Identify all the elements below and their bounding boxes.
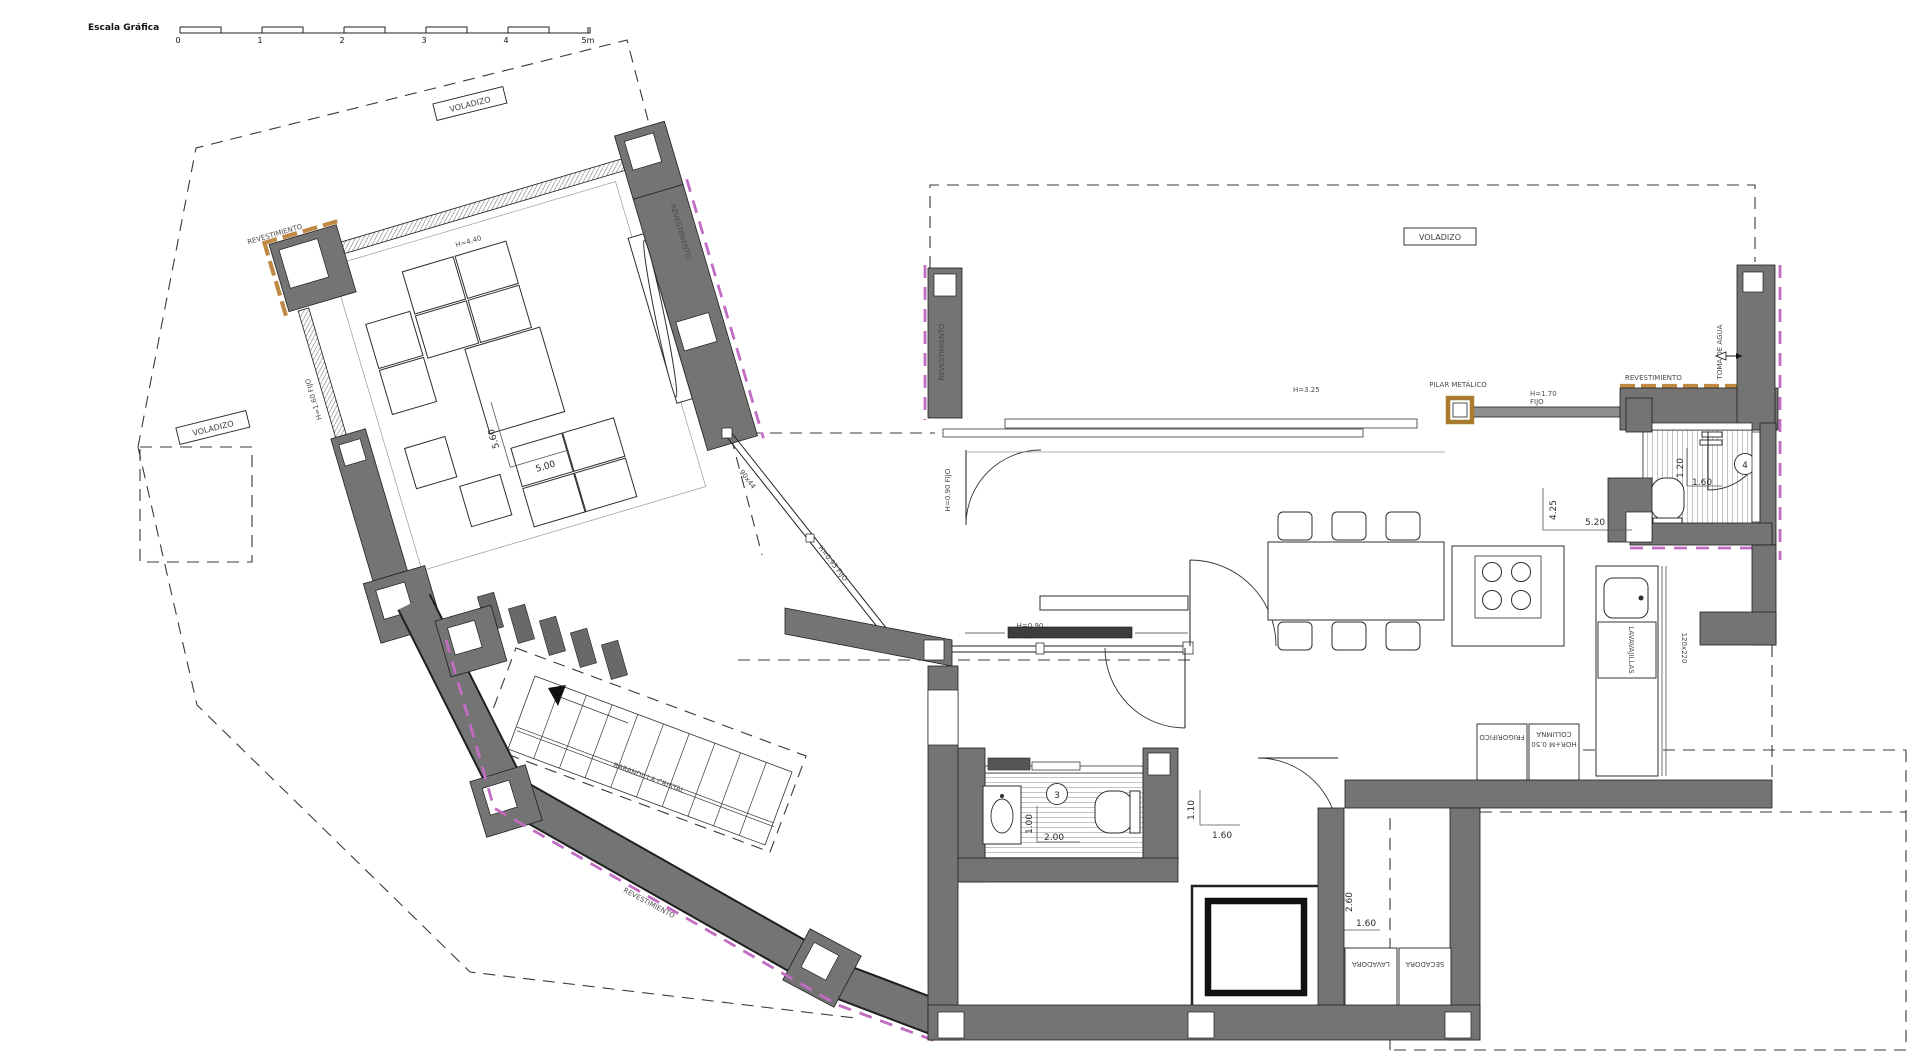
window-post (722, 428, 732, 438)
bathroom-4-dim-b: 1.60 (1692, 478, 1712, 488)
sliding-door-panel (1008, 627, 1132, 638)
voladizo-label-left: VOLADIZO (176, 411, 250, 445)
wing-west-door-gap (928, 690, 958, 745)
room-number-4: 4 (1742, 461, 1748, 471)
scale-bar-ticks: 0 1 2 3 4 5m (175, 36, 594, 45)
dining-set (1268, 512, 1444, 650)
counter-dim-label: 120x220 (1680, 633, 1688, 664)
scale-tick-0: 0 (175, 36, 180, 45)
bathroom-3-dim-a: 1.00 (1025, 814, 1035, 834)
kitchen-faucet (1639, 596, 1644, 601)
bathroom-3-south-wall (952, 858, 1178, 882)
bathroom-3-shelf (988, 758, 1030, 770)
kitchen-wing: REVESTIMIENTO H=3.25 PILAR METÁLICO H=1.… (785, 265, 1780, 1040)
coffee-table (465, 327, 565, 434)
toilet-bath3 (1095, 791, 1133, 833)
dining-chair (1278, 622, 1312, 650)
kitchen-north-window-b (1005, 419, 1417, 428)
voladizo-label-text: VOLADIZO (1419, 233, 1461, 242)
revestimiento-label-topright: REVESTIMIENTO (1625, 374, 1682, 382)
washer-box (1345, 948, 1397, 1006)
living-south-walls: REVESTIMIENTO (414, 602, 945, 1042)
bathroom-3-dim-b: 2.00 (1044, 833, 1064, 843)
kitchen-south-wall (1345, 780, 1772, 808)
bathroom-4-north-wall (1643, 423, 1752, 430)
kitchen-dim-b: 5.20 (1585, 518, 1605, 528)
kitchen-dim-a: 4.25 (1549, 500, 1559, 520)
hall-dim-lines (1200, 790, 1240, 825)
dining-chair (1386, 622, 1420, 650)
shelf (1700, 440, 1722, 445)
laundry-west-wall (1318, 808, 1344, 1008)
window-post (806, 534, 814, 542)
bathroom-4-dim-a: 1.20 (1676, 458, 1686, 478)
kitchen-mid-wall-core (1626, 512, 1652, 542)
kitchen-island (1452, 546, 1564, 646)
kitchen-window-label-b2: FIJO (1530, 398, 1544, 406)
counter-edge (1662, 566, 1666, 776)
sofa-group-lower (453, 418, 636, 544)
scale-tick-3: 3 (421, 36, 426, 45)
dishwasher-box (1598, 622, 1656, 678)
fridge-box (1477, 724, 1527, 780)
bathroom-3: 3 1.00 2.00 (952, 748, 1178, 882)
dining-chair (1332, 622, 1366, 650)
kitchen-window-label-b1: H=1.70 (1530, 390, 1557, 398)
elevator-shaft-inner (1208, 901, 1304, 993)
terrace-door-label: H=0.90 FIJO (944, 468, 952, 511)
kitchen-window-label-a: H=3.25 (1293, 386, 1320, 394)
dryer-box (1399, 948, 1451, 1006)
bathroom-4-west-wall (1626, 398, 1652, 432)
voladizo-outline-right (930, 185, 1755, 268)
dining-chair (1332, 512, 1366, 540)
living-wing: H=4.40 REVESTIMIENTO REVESTIMIENTO H=1.6… (247, 114, 789, 647)
hall-bench (1040, 596, 1188, 610)
dining-chair (1278, 512, 1312, 540)
scale-tick-1: 1 (257, 36, 262, 45)
east-wall-corner (1700, 612, 1776, 645)
hall-dim-b: 1.60 (1212, 831, 1232, 841)
dining-table (1268, 542, 1444, 620)
terrace-south-wall-core (924, 640, 944, 660)
bathroom-4-window (1752, 432, 1760, 522)
pilar-metalico-label: PILAR METÁLICO (1429, 380, 1487, 389)
lavadora-label: LAVADORA (1352, 960, 1390, 968)
toma-de-agua-label: TOMA DE AGUA (1716, 324, 1724, 380)
kitchen-terrace-door-arc (966, 450, 1041, 525)
floor-plan-canvas: Escala Gráfica 0 1 2 3 4 5m VOLADIZO VOL… (0, 0, 1920, 1061)
kitchen-north-window-a (1472, 407, 1640, 417)
pilar-metalico-core (1453, 403, 1467, 417)
wing-south-column-1 (938, 1012, 964, 1038)
window-post (1036, 643, 1044, 654)
east-wall-top-core (1743, 272, 1763, 292)
hall-dim-a: 1.10 (1187, 800, 1197, 820)
living-north-window-label: H=4.40 (455, 234, 483, 249)
room-number-3: 3 (1054, 791, 1060, 801)
kitchen-west-wall-core (934, 274, 956, 296)
shelf (1702, 432, 1722, 437)
vanity-faucet (1000, 794, 1004, 798)
revestimiento-label-kitchen-west: REVESTIMIENTO (938, 323, 946, 380)
voladizo-label-right: VOLADIZO (1404, 228, 1476, 245)
frigorifico-label: FRIGORIFICO (1479, 733, 1525, 741)
terrace-door-arc (1190, 560, 1276, 646)
scale-tick-2: 2 (339, 36, 344, 45)
secadora-label: SECADORA (1405, 960, 1444, 968)
voladizo-label-top: VOLADIZO (433, 87, 507, 121)
wing-south-column-3 (1445, 1012, 1471, 1038)
laundry-dim-b: 1.60 (1356, 919, 1376, 929)
toilet-bath3-tank (1130, 791, 1140, 833)
scale-bar: Escala Gráfica 0 1 2 3 4 5m (88, 23, 595, 45)
scale-bar-title: Escala Gráfica (88, 23, 159, 33)
kitchen-north-window-c (943, 429, 1363, 437)
scale-tick-5: 5m (582, 36, 595, 45)
columna-label-2: HOR+M 0.50 (1531, 740, 1576, 748)
scale-tick-4: 4 (503, 36, 508, 45)
lavavajillas-label: LAVAVAJILLAS (1627, 626, 1635, 674)
bathroom-3-east-wall-core (1148, 753, 1170, 775)
wing-south-column-2 (1188, 1012, 1214, 1038)
bathroom-3-counter (1032, 762, 1080, 770)
toilet-bath4 (1651, 478, 1684, 520)
living-north-window (341, 159, 624, 253)
scale-bar-graphic (180, 27, 590, 33)
columna-label-1: COLUMNA (1536, 730, 1571, 738)
voladizo-outline-left-step (140, 447, 252, 562)
dining-chair (1386, 512, 1420, 540)
laundry-dim-a: 2.60 (1345, 892, 1355, 912)
terrace-slope-label-b: H=0.95 FIJO (816, 544, 849, 583)
